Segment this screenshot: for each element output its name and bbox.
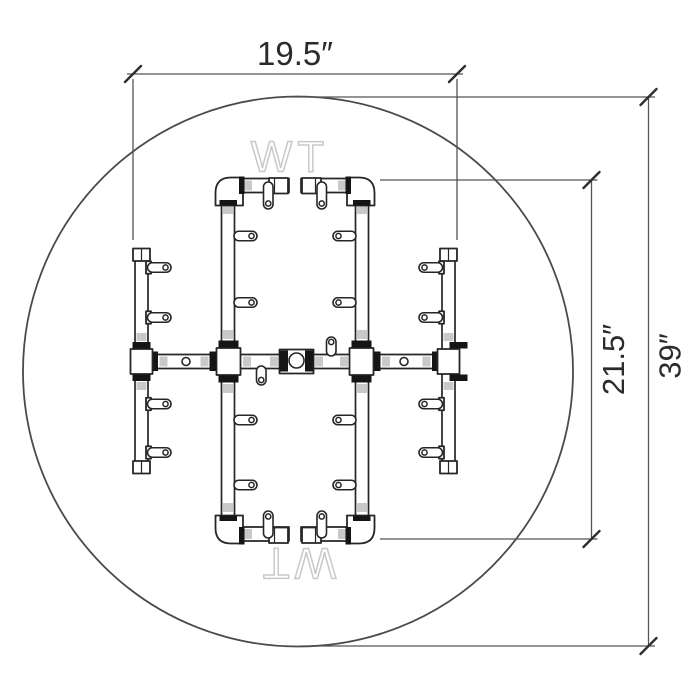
dimension-width-label: 19.5″ xyxy=(257,35,333,72)
drawing-sheet: 19.5″ 21.5″ 39″ WT WT xyxy=(0,0,700,700)
diagram-canvas: 19.5″ 21.5″ 39″ WT WT xyxy=(0,0,700,700)
dimension-diameter-label: 39″ xyxy=(653,333,688,378)
center-inlet-hub xyxy=(280,350,314,374)
mounting-hole-left xyxy=(182,358,190,366)
watermark-top: WT xyxy=(251,133,329,182)
watermark-bottom: WT xyxy=(258,539,336,588)
gas-inlet-port xyxy=(289,353,304,368)
mounting-hole-right xyxy=(400,358,408,366)
dimension-depth-label: 21.5″ xyxy=(596,324,631,395)
burner-assembly xyxy=(131,177,468,545)
